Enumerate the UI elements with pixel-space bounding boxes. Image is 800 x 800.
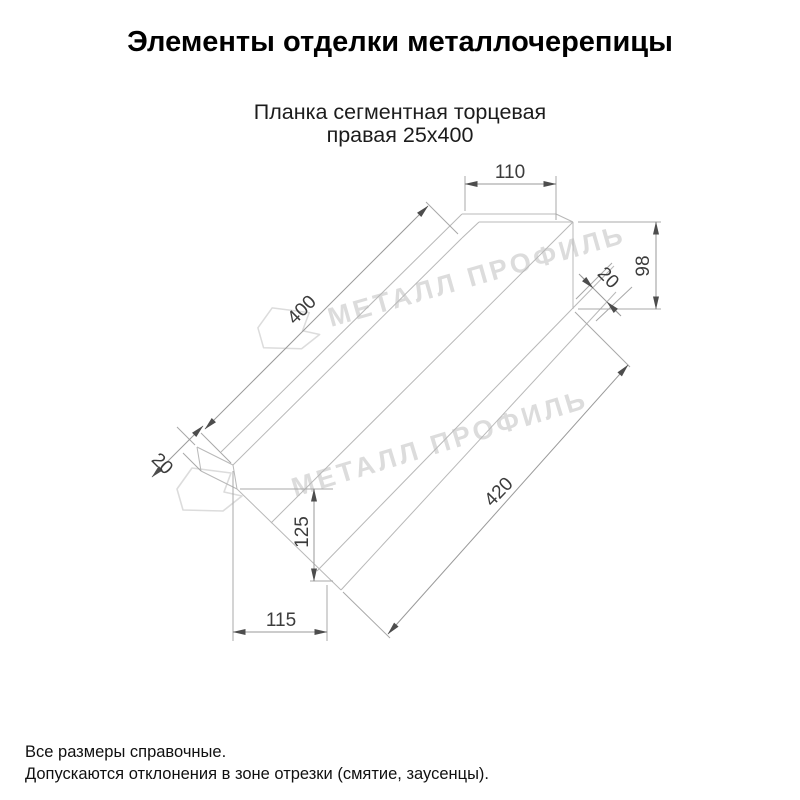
dim-20-bottom-left: 20 [147,426,203,479]
dim-125: 125 [240,489,333,581]
watermark-group: МЕТАЛЛ ПРОФИЛЬ МЕТАЛЛ ПРОФИЛЬ [177,219,629,511]
dim-420-label: 420 [480,473,517,510]
dim-110-label: 110 [495,162,525,183]
dim-400: 400 [201,202,458,463]
technical-drawing: МЕТАЛЛ ПРОФИЛЬ МЕТАЛЛ ПРОФИЛЬ [0,0,800,800]
dim-110: 110 [465,162,556,220]
catalog-page: Элементы отделки металлочерепицы Планка … [0,0,800,800]
dim-125-label: 125 [292,516,313,548]
dim-98-label: 98 [633,255,654,276]
dim-400-label: 400 [283,291,320,328]
dim-20-bottom-left-label: 20 [147,449,177,479]
watermark-text-lower: МЕТАЛЛ ПРОФИЛЬ [288,384,592,503]
footer-note-1: Все размеры справочные. [25,741,489,763]
dim-20-top-right-label: 20 [593,263,623,293]
footer-note-2: Допускаются отклонения в зоне отрезки (с… [25,763,489,785]
watermark-text-upper: МЕТАЛЛ ПРОФИЛЬ [324,219,629,333]
metall-profil-logo-icon [177,468,242,511]
footer-notes: Все размеры справочные. Допускаются откл… [25,741,489,785]
dim-20-top-right: 20 [576,263,632,321]
dim-115-label: 115 [266,610,296,631]
